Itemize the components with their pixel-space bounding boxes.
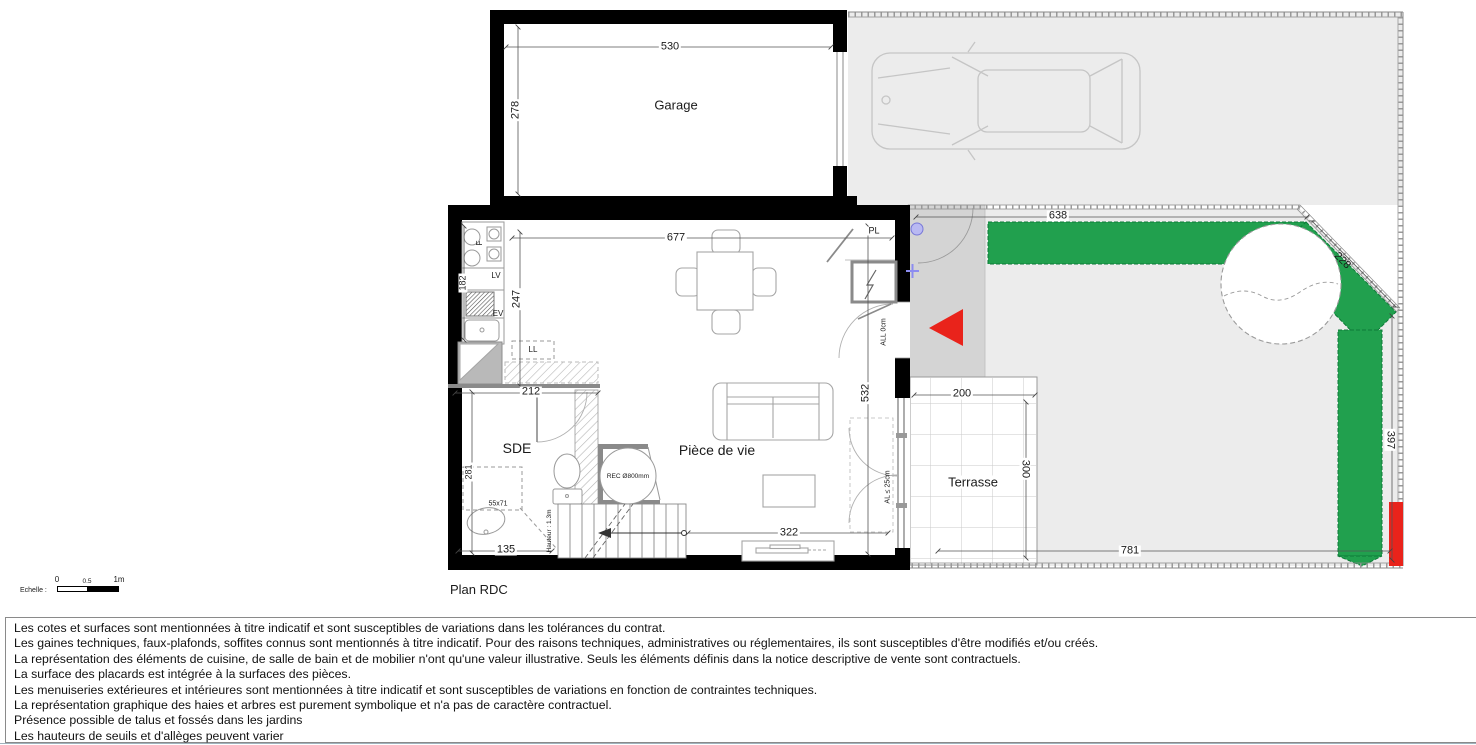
dim-781: 781 <box>1119 546 1141 557</box>
dim-278: 278 <box>511 99 522 121</box>
room-label-garage: Garage <box>652 99 699 112</box>
floor-plan-drawing <box>0 0 1476 612</box>
sink-label-ev: EV <box>491 310 506 318</box>
scale-tick-0: 0 <box>53 576 61 584</box>
dim-300: 300 <box>1020 458 1031 480</box>
threshold-label-all0: ALL 0cm <box>881 316 888 347</box>
dim-182: 182 <box>459 273 468 292</box>
disclaimer-line: La surface des placards est intégrée à l… <box>14 667 1476 682</box>
hob-label-f: F <box>476 239 484 248</box>
driveway-area <box>848 12 1403 205</box>
dim-322: 322 <box>778 528 800 539</box>
disclaimer-line: Les hauteurs de seuils et d'allèges peuv… <box>14 729 1476 744</box>
scale-segment-white <box>57 586 89 592</box>
staircase <box>558 504 687 558</box>
scale-label: Echelle : <box>18 587 49 594</box>
disclaimer-line: Présence possible de talus et fossés dan… <box>14 713 1476 728</box>
garage-door <box>837 52 843 166</box>
shower-size-label: REC Ø800mm <box>605 474 651 481</box>
basin-size-label: 55x71 <box>486 501 509 508</box>
disclaimer-box: Les cotes et surfaces sont mentionnées à… <box>5 617 1476 743</box>
french-window <box>895 398 910 548</box>
washer-label-ll: LL <box>527 346 540 354</box>
stair-note-label: Hauteur : 1.3m <box>547 508 554 555</box>
light-symbol-icon <box>911 223 923 235</box>
dim-200: 200 <box>951 389 973 400</box>
disclaimer-line: La représentation des éléments de cuisin… <box>14 652 1476 667</box>
toilet <box>553 454 582 504</box>
dim-247: 247 <box>512 288 523 310</box>
room-label-sde: SDE <box>501 441 534 455</box>
tree-icon <box>1221 224 1341 344</box>
disclaimer-line: Les cotes et surfaces sont mentionnées à… <box>14 621 1476 636</box>
disclaimer-line: Les gaines techniques, faux-plafonds, so… <box>14 636 1476 651</box>
dim-135: 135 <box>495 545 517 556</box>
floor-plan-page: Garage SDE Pièce de vie Terrasse 530 278… <box>0 0 1476 745</box>
sill-label-al25: AL ≤ 25cm <box>885 468 892 505</box>
scale-segment-black <box>87 586 119 592</box>
dim-532: 532 <box>861 382 872 404</box>
boundary-marker-red <box>1389 502 1403 566</box>
sofa <box>713 383 833 440</box>
page-bottom-rule <box>0 743 1476 744</box>
dim-638: 638 <box>1047 211 1069 222</box>
electrical-panel <box>852 262 896 302</box>
disclaimer-line: La représentation graphique des haies et… <box>14 698 1476 713</box>
dim-281: 281 <box>465 462 474 481</box>
dim-530: 530 <box>659 42 681 53</box>
coffee-table <box>763 475 815 507</box>
scale-tick-1m: 1m <box>111 576 126 584</box>
disclaimer-line: Les menuiseries extérieures et intérieur… <box>14 683 1476 698</box>
tv-console <box>742 541 834 561</box>
scale-tick-05: 0.5 <box>80 579 93 586</box>
plan-title: Plan RDC <box>448 583 510 596</box>
terrace-paving <box>910 377 1037 565</box>
dim-677: 677 <box>665 233 687 244</box>
dim-397: 397 <box>1385 429 1396 451</box>
room-label-living: Pièce de vie <box>677 443 757 457</box>
room-label-terrace: Terrasse <box>946 476 1000 489</box>
dim-212: 212 <box>520 387 542 398</box>
dishwasher-label-lv: LV <box>489 272 502 280</box>
closet-label-pl: PL <box>866 227 881 236</box>
